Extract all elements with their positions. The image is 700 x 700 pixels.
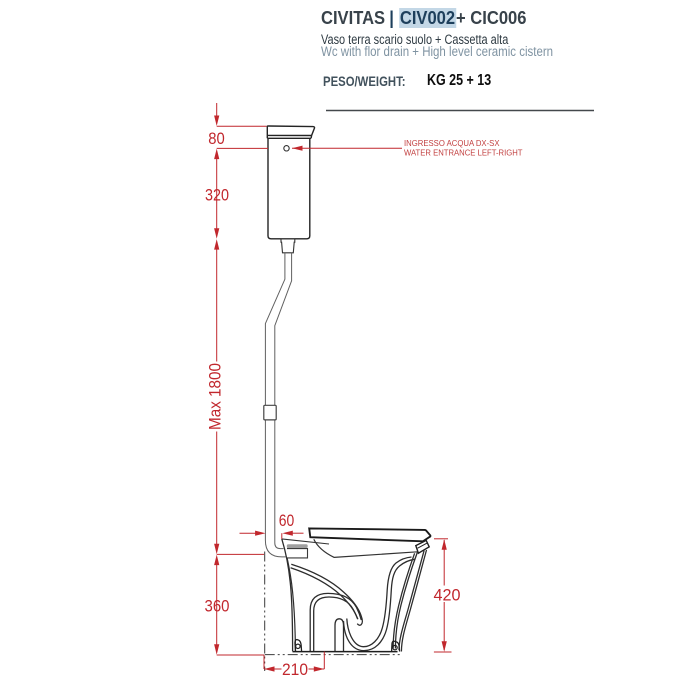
svg-text:60: 60 xyxy=(279,511,295,530)
svg-text:Max 1800: Max 1800 xyxy=(206,363,225,430)
svg-text:420: 420 xyxy=(434,585,461,604)
svg-text:360: 360 xyxy=(205,596,230,615)
svg-text:INGRESSO ACQUA DX-SX: INGRESSO ACQUA DX-SX xyxy=(404,139,500,148)
svg-text:80: 80 xyxy=(208,129,225,148)
svg-text:320: 320 xyxy=(205,185,229,204)
svg-text:WATER ENTRANCE LEFT-RIGHT: WATER ENTRANCE LEFT-RIGHT xyxy=(404,148,523,157)
svg-text:210: 210 xyxy=(282,660,308,679)
